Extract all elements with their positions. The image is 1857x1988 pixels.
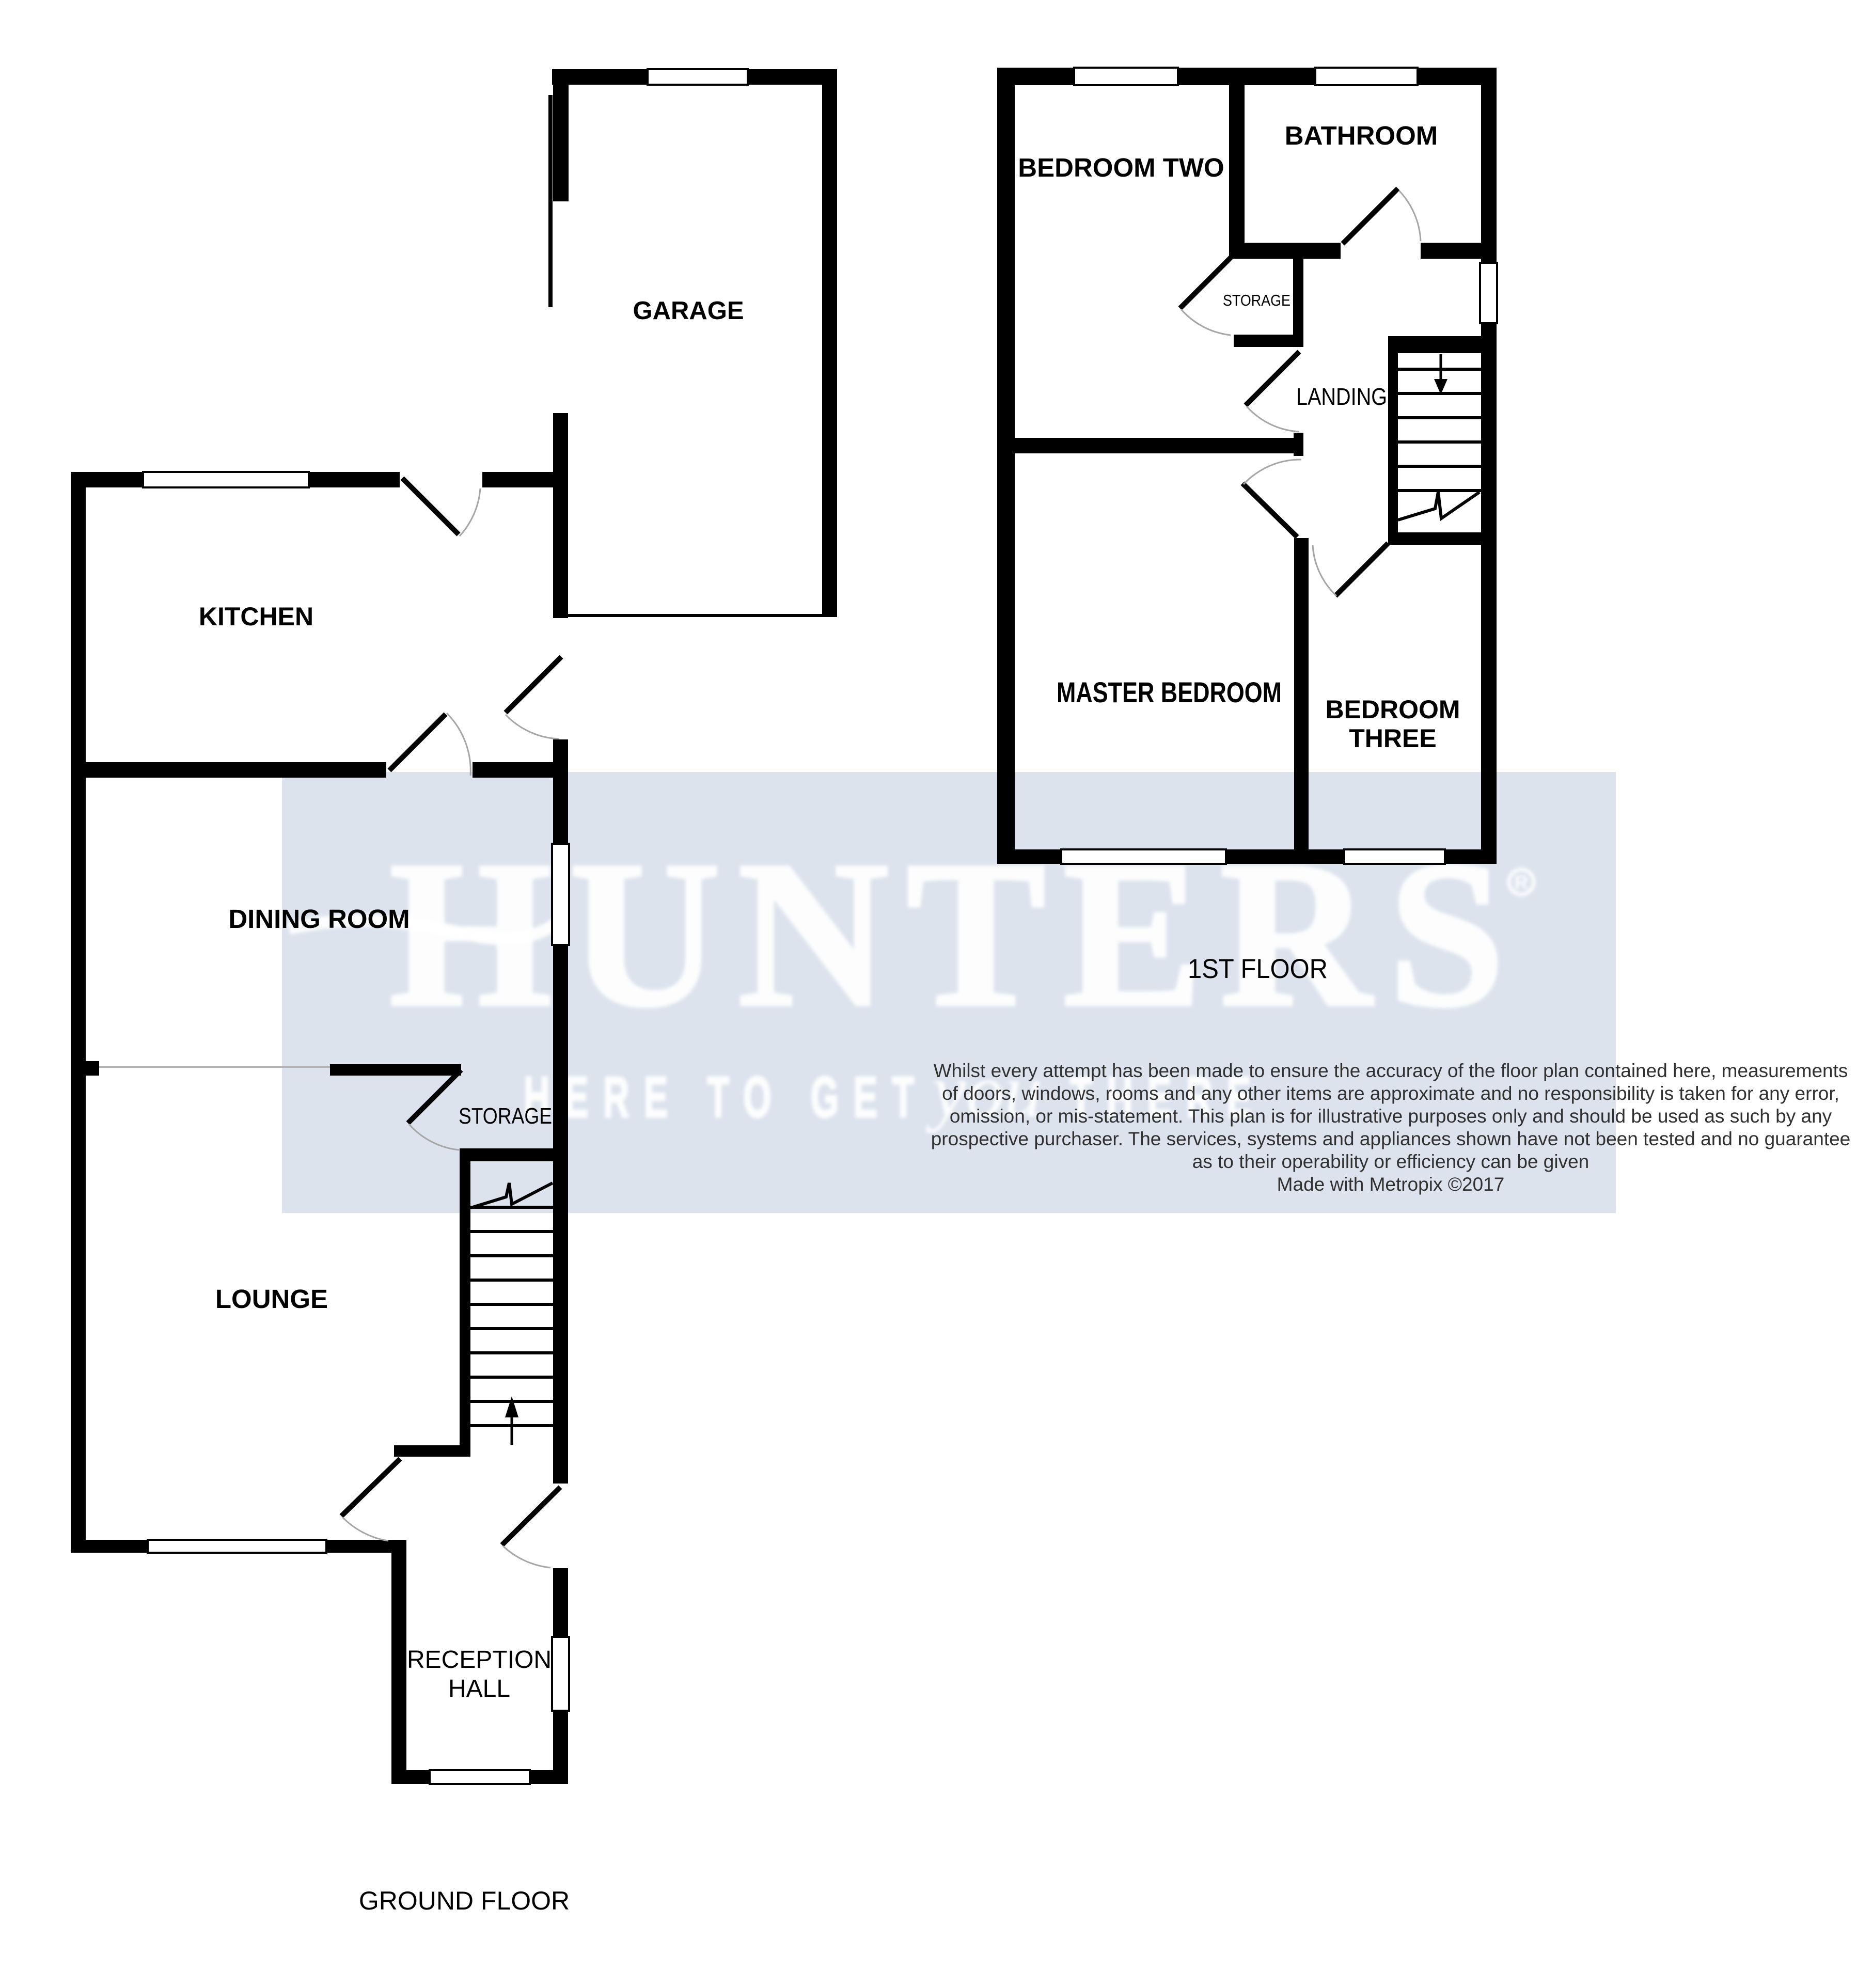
svg-text:of doors, windows, rooms and a: of doors, windows, rooms and any other i… bbox=[942, 1083, 1839, 1104]
svg-text:GARAGE: GARAGE bbox=[633, 297, 744, 325]
svg-text:1ST FLOOR: 1ST FLOOR bbox=[1188, 954, 1328, 984]
svg-text:HALL: HALL bbox=[448, 1675, 510, 1702]
svg-text:LANDING: LANDING bbox=[1296, 383, 1387, 410]
svg-text:THREE: THREE bbox=[1349, 724, 1436, 753]
svg-text:KITCHEN: KITCHEN bbox=[199, 602, 313, 631]
svg-text:BEDROOM TWO: BEDROOM TWO bbox=[1018, 153, 1224, 182]
svg-text:Whilst every attempt has been: Whilst every attempt has been made to en… bbox=[934, 1060, 1848, 1081]
svg-text:R: R bbox=[1514, 872, 1528, 894]
svg-text:BEDROOM: BEDROOM bbox=[1325, 695, 1460, 724]
svg-text:RECEPTION: RECEPTION bbox=[407, 1646, 552, 1674]
svg-text:DINING ROOM: DINING ROOM bbox=[228, 904, 410, 934]
svg-text:MASTER BEDROOM: MASTER BEDROOM bbox=[1057, 676, 1282, 708]
svg-text:prospective purchaser. The ser: prospective purchaser. The services, sys… bbox=[931, 1128, 1851, 1149]
svg-text:omission, or mis-statement. Th: omission, or mis-statement. This plan is… bbox=[950, 1106, 1832, 1127]
svg-text:STORAGE: STORAGE bbox=[459, 1103, 552, 1129]
svg-text:HERE TO GET: HERE TO GET bbox=[524, 1065, 929, 1129]
svg-text:Made with Metropix ©2017: Made with Metropix ©2017 bbox=[1277, 1174, 1505, 1195]
svg-text:BATHROOM: BATHROOM bbox=[1285, 121, 1438, 150]
svg-text:as to their operability or eff: as to their operability or efficiency ca… bbox=[1192, 1151, 1590, 1172]
svg-text:GROUND FLOOR: GROUND FLOOR bbox=[359, 1886, 570, 1915]
svg-text:LOUNGE: LOUNGE bbox=[215, 1284, 328, 1314]
svg-text:STORAGE: STORAGE bbox=[1223, 291, 1291, 309]
